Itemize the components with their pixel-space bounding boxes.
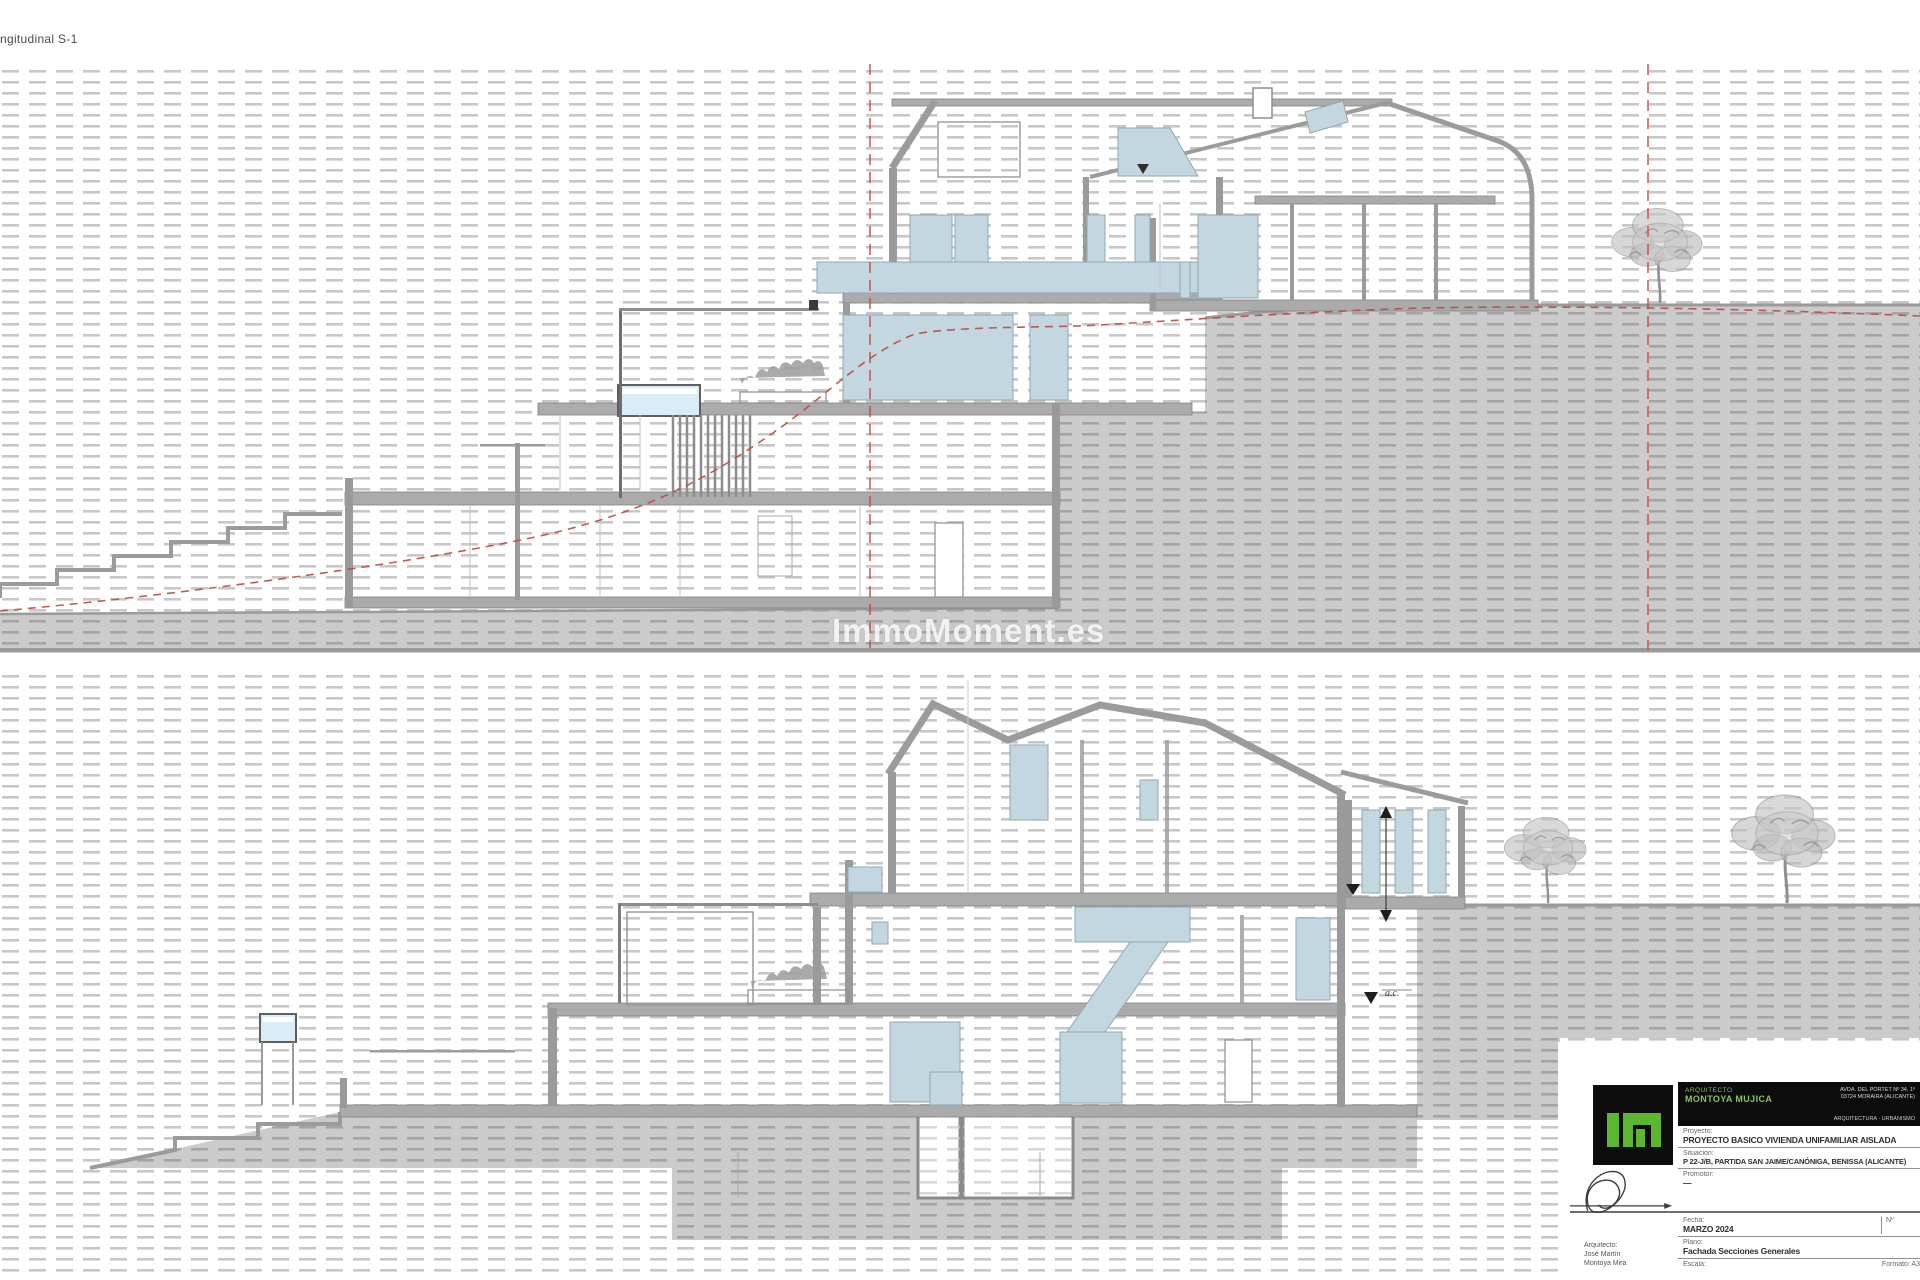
field-sheet-number: Nº <box>1881 1217 1920 1234</box>
field-format: Formato: A3 <box>1882 1261 1920 1268</box>
title-block-header: ARQUITECTO MONTOYA MUJICA AVDA. DEL PORT… <box>1678 1082 1920 1126</box>
logo-m-icon <box>1593 1085 1673 1165</box>
section-1-longitudinal <box>0 62 1920 653</box>
title-block-fields: Proyecto: PROYECTO BASICO VIVIENDA UNIFA… <box>1678 1126 1920 1190</box>
architectural-drawing-sheet: a.c. ngitudinal S-1 ImmoMoment.es ARQUIT… <box>0 0 1920 1280</box>
field-site: Situación: P 22-J/B, PARTIDA SAN JAIME/C… <box>1678 1148 1920 1169</box>
title-block-fields-lower: Fecha: MARZO 2024 Nº Plano: Fachada Secc… <box>1678 1215 1920 1270</box>
watermark: ImmoMoment.es <box>832 612 1105 650</box>
signature-caption: Arquitecto: José Martín Montoya Mira <box>1584 1241 1626 1268</box>
field-date: Fecha: MARZO 2024 Nº <box>1678 1215 1920 1237</box>
studio-tagline: ARQUITECTURA · URBANISMO <box>1834 1116 1915 1122</box>
studio-logo <box>1593 1085 1673 1165</box>
title-block: ARQUITECTO MONTOYA MUJICA AVDA. DEL PORT… <box>1562 1045 1920 1280</box>
field-scale: Escala: Formato: A3 <box>1678 1259 1920 1270</box>
sheet-title: ngitudinal S-1 <box>0 32 78 46</box>
studio-address: AVDA. DEL PORTET Nº 34, 1º 03724 MORAIRA… <box>1840 1087 1915 1101</box>
chimney <box>1253 88 1272 118</box>
basement-door <box>935 523 963 597</box>
field-plan: Plano: Fachada Secciones Generales <box>1678 1237 1920 1259</box>
architect-signature <box>1568 1157 1676 1241</box>
field-project: Proyecto: PROYECTO BASICO VIVIENDA UNIFA… <box>1678 1126 1920 1148</box>
field-promoter: Promotor: — <box>1678 1169 1920 1190</box>
lower-door <box>1225 1040 1252 1102</box>
